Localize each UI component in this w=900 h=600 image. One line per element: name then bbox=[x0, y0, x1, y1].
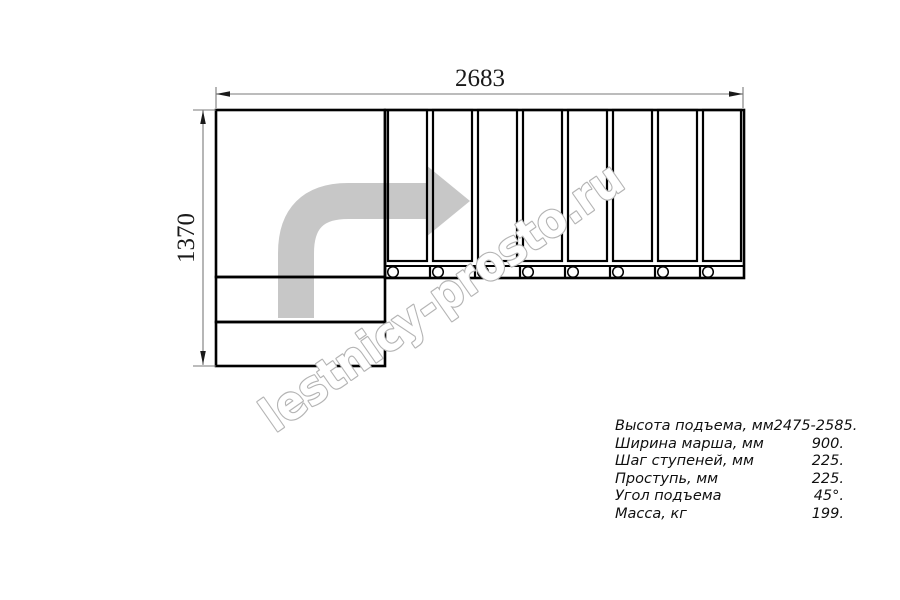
spec-row: Высота подъема, мм 2475-2585. bbox=[615, 418, 844, 436]
spec-label: Ширина марша, мм bbox=[615, 436, 764, 454]
dim-arrow-bottom bbox=[200, 351, 206, 365]
dimension-width-label: 2683 bbox=[455, 65, 505, 92]
dimension-width: 2683 bbox=[216, 65, 743, 108]
spec-label: Шаг ступеней, мм bbox=[615, 453, 754, 471]
spec-label: Масса, кг bbox=[615, 506, 687, 524]
spec-value: 900. bbox=[812, 436, 844, 454]
tread-rect bbox=[658, 110, 697, 261]
fastener-circle bbox=[613, 267, 624, 278]
fastener-circle bbox=[388, 267, 399, 278]
spec-table: Высота подъема, мм 2475-2585. Ширина мар… bbox=[615, 418, 844, 523]
fastener-circle bbox=[568, 267, 579, 278]
spec-value: 2475-2585. bbox=[774, 418, 858, 436]
spec-row: Шаг ступеней, мм 225. bbox=[615, 453, 844, 471]
spec-value: 225. bbox=[812, 453, 844, 471]
spec-label: Проступь, мм bbox=[615, 471, 718, 489]
spec-row: Проступь, мм 225. bbox=[615, 471, 844, 489]
spec-row: Масса, кг 199. bbox=[615, 506, 844, 524]
dimension-height: 1370 bbox=[173, 110, 216, 366]
spec-row: Угол подъема 45°. bbox=[615, 488, 844, 506]
fastener-circle bbox=[658, 267, 669, 278]
dimension-height-label: 1370 bbox=[173, 213, 200, 263]
fastener-circle bbox=[703, 267, 714, 278]
spec-label: Высота подъема, мм bbox=[615, 418, 774, 436]
spec-label: Угол подъема bbox=[615, 488, 722, 506]
spec-value: 45°. bbox=[814, 488, 844, 506]
dim-arrow-top bbox=[200, 111, 206, 125]
spec-value: 225. bbox=[812, 471, 844, 489]
dim-arrow-right bbox=[729, 91, 743, 97]
tread-rect bbox=[703, 110, 741, 261]
dim-arrow-left bbox=[216, 91, 230, 97]
spec-value: 199. bbox=[812, 506, 844, 524]
spec-row: Ширина марша, мм 900. bbox=[615, 436, 844, 454]
